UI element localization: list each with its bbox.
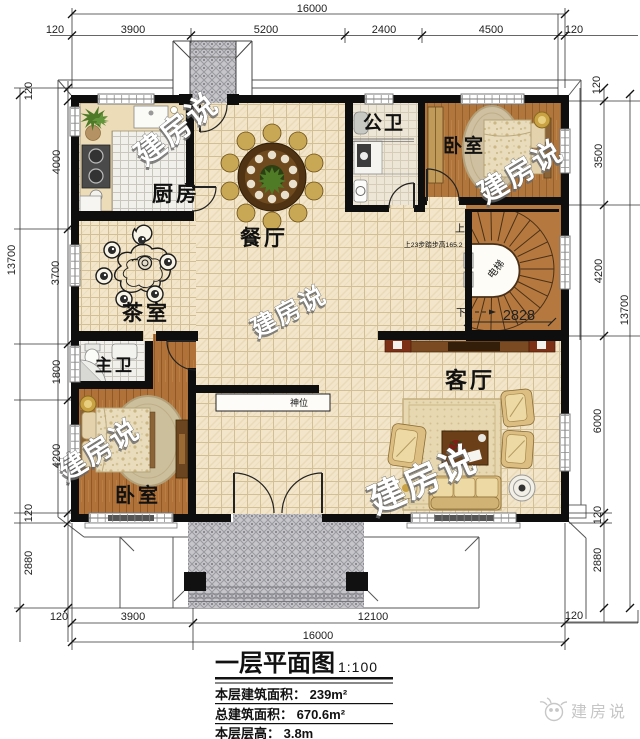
svg-text:本层建筑面积： 239m²: 本层建筑面积： 239m² <box>215 687 348 702</box>
svg-text:120: 120 <box>565 610 583 622</box>
svg-text:120: 120 <box>565 24 583 36</box>
svg-text:总建筑面积： 670.6m²: 总建筑面积： 670.6m² <box>215 707 346 722</box>
svg-text:本层层高： 3.8m: 本层层高： 3.8m <box>215 726 313 739</box>
svg-text:4500: 4500 <box>479 24 503 36</box>
svg-text:120: 120 <box>46 24 64 36</box>
svg-text:6000: 6000 <box>592 409 604 433</box>
svg-text:2400: 2400 <box>372 24 396 36</box>
svg-text:2880: 2880 <box>592 548 604 572</box>
svg-text:3500: 3500 <box>593 144 605 168</box>
svg-text:1:100: 1:100 <box>338 659 378 675</box>
svg-text:3700: 3700 <box>50 261 62 285</box>
svg-text:120: 120 <box>50 611 68 623</box>
svg-text:厨房: 厨房 <box>152 182 200 206</box>
svg-text:1800: 1800 <box>51 360 63 384</box>
svg-text:12100: 12100 <box>358 611 389 623</box>
svg-text:4200: 4200 <box>51 444 63 468</box>
svg-text:3900: 3900 <box>121 24 145 36</box>
svg-text:16000: 16000 <box>297 3 328 15</box>
svg-text:4000: 4000 <box>51 150 63 174</box>
svg-text:2828: 2828 <box>503 308 535 324</box>
svg-text:120: 120 <box>591 76 603 94</box>
svg-text:主卫: 主卫 <box>95 355 135 375</box>
svg-text:5200: 5200 <box>254 24 278 36</box>
svg-text:上: 上 <box>455 223 465 235</box>
svg-text:卧室: 卧室 <box>115 483 161 507</box>
svg-text:120: 120 <box>23 504 35 522</box>
svg-text:公卫: 公卫 <box>363 112 405 134</box>
svg-text:13700: 13700 <box>619 295 631 326</box>
svg-text:下: 下 <box>456 308 466 319</box>
svg-text:餐厅: 餐厅 <box>240 226 288 250</box>
svg-text:120: 120 <box>592 506 604 524</box>
svg-text:16000: 16000 <box>303 630 334 642</box>
svg-text:客厅: 客厅 <box>445 368 495 393</box>
svg-text:一层平面图: 一层平面图 <box>215 650 335 677</box>
svg-text:茶室: 茶室 <box>122 301 170 325</box>
svg-text:4200: 4200 <box>593 259 605 283</box>
svg-text:2880: 2880 <box>23 551 35 575</box>
svg-text:120: 120 <box>23 82 35 100</box>
svg-text:神位: 神位 <box>290 397 308 408</box>
svg-text:上23步踏步高165.2: 上23步踏步高165.2 <box>404 240 463 249</box>
svg-text:卧室: 卧室 <box>443 134 485 157</box>
svg-text:建房说: 建房说 <box>571 703 628 721</box>
svg-text:3900: 3900 <box>121 611 145 623</box>
svg-text:13700: 13700 <box>6 245 18 276</box>
